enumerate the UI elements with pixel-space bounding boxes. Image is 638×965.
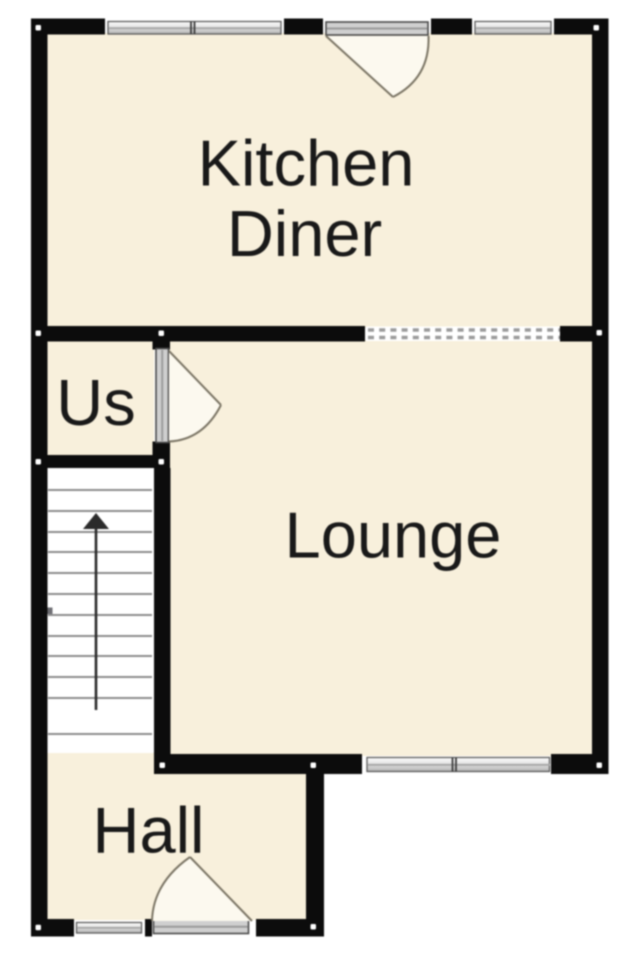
- svg-text:Lounge: Lounge: [285, 499, 502, 572]
- svg-text:Kitchen: Kitchen: [198, 127, 415, 200]
- svg-text:Us: Us: [56, 366, 135, 439]
- svg-text:Hall: Hall: [93, 794, 205, 867]
- svg-text:Diner: Diner: [227, 197, 382, 270]
